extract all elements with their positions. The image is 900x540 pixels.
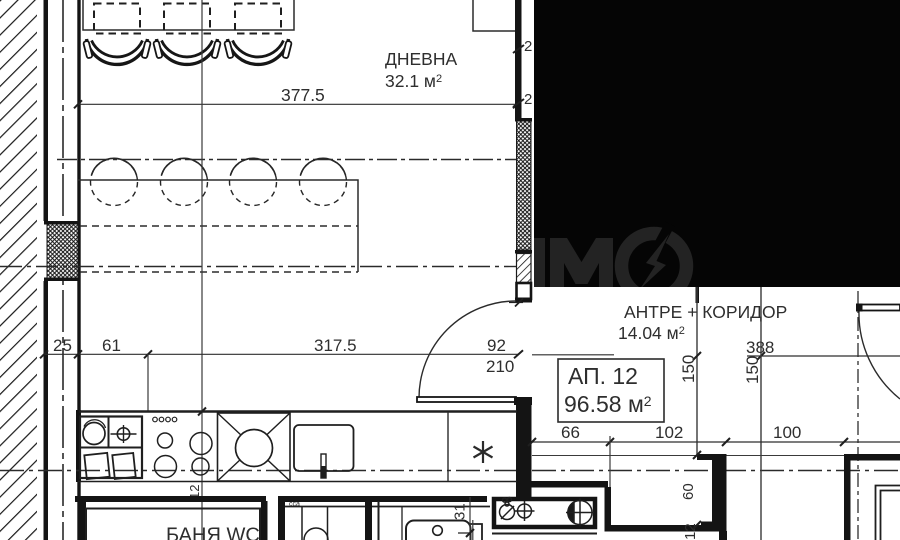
svg-text:25: 25: [53, 336, 72, 355]
svg-text:210: 210: [486, 357, 514, 376]
svg-text:2: 2: [524, 38, 532, 55]
svg-text:100: 100: [773, 423, 801, 442]
svg-text:66: 66: [561, 423, 580, 442]
svg-text:АНТРЕ + КОРИДОР: АНТРЕ + КОРИДОР: [624, 302, 787, 322]
svg-text:92: 92: [487, 336, 506, 355]
svg-text:317.5: 317.5: [314, 336, 357, 355]
svg-text:377.5: 377.5: [281, 85, 325, 105]
svg-text:31: 31: [452, 503, 469, 520]
svg-text:150: 150: [679, 355, 698, 383]
svg-text:ДНЕВНА: ДНЕВНА: [385, 49, 457, 69]
svg-text:61: 61: [102, 336, 121, 355]
svg-text:150: 150: [743, 356, 762, 384]
svg-text:32.1 м2: 32.1 м2: [385, 71, 442, 91]
svg-text:БАНЯ WC: БАНЯ WC: [166, 525, 260, 540]
svg-text:60: 60: [680, 483, 697, 500]
svg-text:96.58 м2: 96.58 м2: [564, 391, 652, 417]
svg-text:14.04 м2: 14.04 м2: [618, 323, 685, 343]
svg-text:102: 102: [655, 423, 683, 442]
svg-text:388: 388: [746, 338, 774, 357]
svg-text:2: 2: [524, 91, 532, 108]
svg-text:АП. 12: АП. 12: [568, 363, 638, 389]
